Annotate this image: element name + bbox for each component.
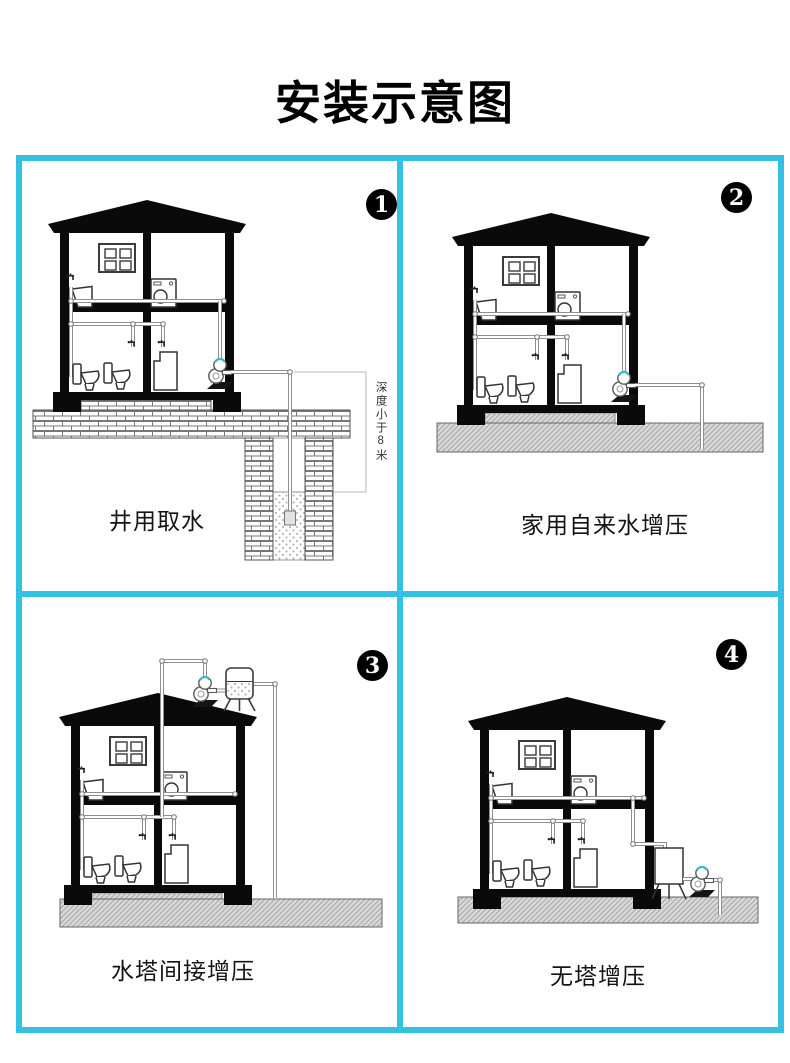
- panel-badge: 1: [366, 189, 397, 220]
- panel-towerless-boost: 4 无塔增压: [403, 597, 778, 1027]
- diagram-grid: 1 深度小于8米 井用取水 2 家用自来水增压: [16, 155, 784, 1033]
- foot-valve: [285, 511, 296, 525]
- panel-water-tower-boost: 3 水塔间接增压: [22, 597, 397, 1027]
- panel-well-intake: 1 深度小于8米 井用取水: [22, 161, 397, 591]
- panel-badge: 2: [721, 182, 752, 213]
- panel-caption: 无塔增压: [550, 957, 646, 991]
- page-title: 安装示意图: [0, 80, 790, 126]
- panel-caption: 井用取水: [109, 502, 205, 536]
- panel-badge: 4: [716, 639, 747, 670]
- ground-slab: [60, 899, 382, 927]
- ground-slab: [33, 410, 350, 438]
- ground-slab: [437, 423, 763, 452]
- panel-tap-water-boost: 2 家用自来水增压: [403, 161, 778, 591]
- depth-note: 深度小于8米: [374, 381, 387, 463]
- panel-caption: 家用自来水增压: [521, 506, 689, 540]
- tower-down-pipe: [253, 684, 275, 898]
- well-intake-diagram: [22, 161, 397, 591]
- ground-slab: [458, 897, 758, 923]
- panel-caption: 水塔间接增压: [111, 952, 255, 986]
- panel-badge: 3: [357, 650, 388, 681]
- page: 安装示意图 1: [0, 0, 790, 1063]
